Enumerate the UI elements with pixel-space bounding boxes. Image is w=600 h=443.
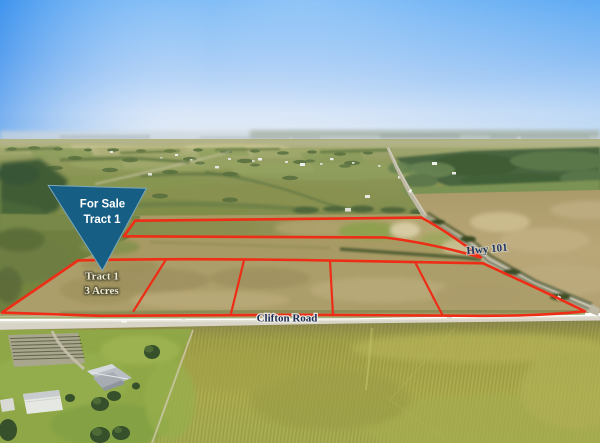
svg-text:Tract 1: Tract 1: [83, 214, 121, 226]
svg-text:3 Acres: 3 Acres: [84, 285, 119, 297]
svg-text:Clifton Road: Clifton Road: [257, 313, 318, 325]
svg-text:For Sale: For Sale: [80, 199, 125, 211]
svg-text:Tract 1: Tract 1: [85, 271, 119, 283]
